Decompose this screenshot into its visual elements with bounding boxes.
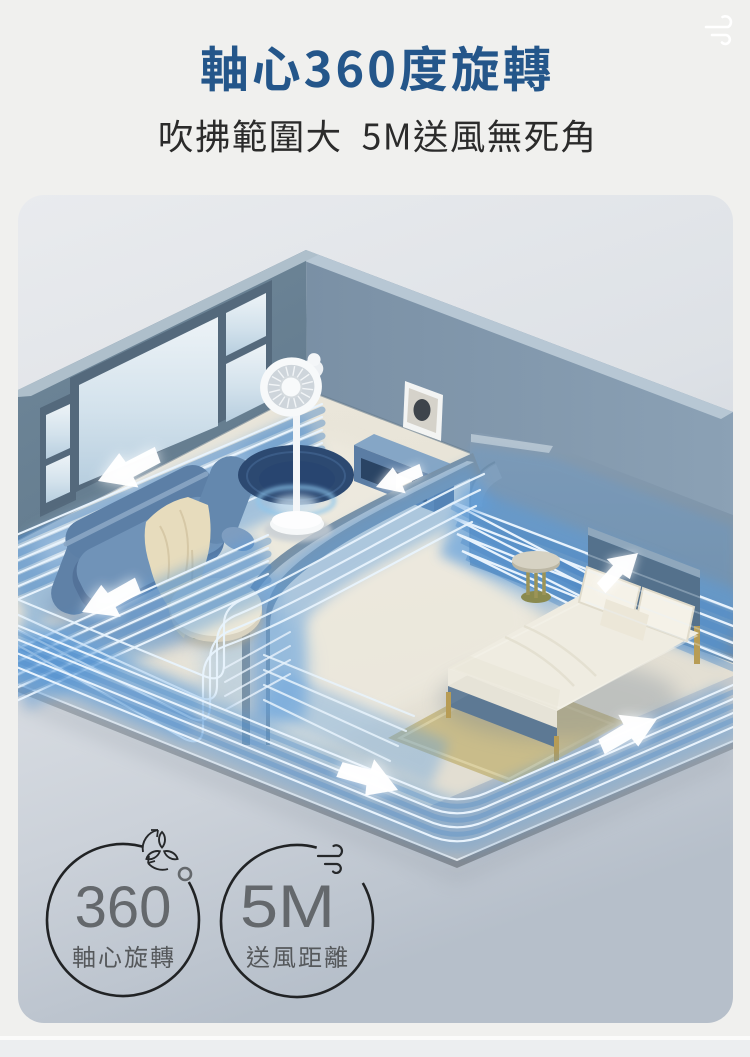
svg-text:5M: 5M — [240, 873, 335, 940]
svg-text:360: 360 — [75, 875, 172, 940]
